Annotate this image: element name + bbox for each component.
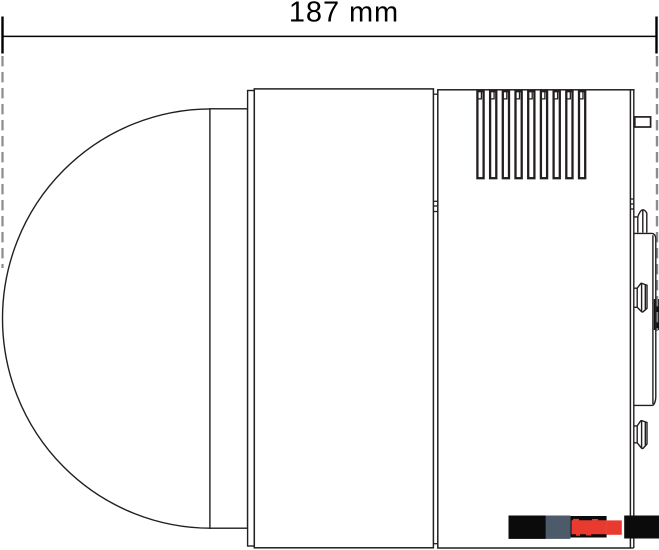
svg-text:187 mm: 187 mm: [289, 0, 399, 29]
